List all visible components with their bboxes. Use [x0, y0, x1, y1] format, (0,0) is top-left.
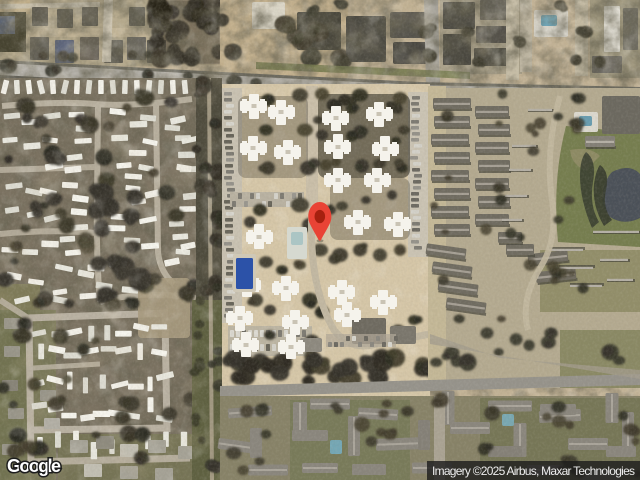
svg-text:Google: Google [7, 456, 61, 476]
svg-text:Imagery ©2025 Airbus, Maxar Te: Imagery ©2025 Airbus, Maxar Technologies [432, 464, 635, 478]
